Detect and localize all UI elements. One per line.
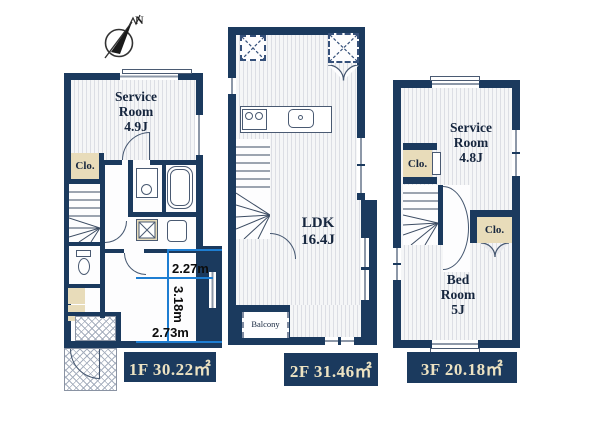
floor3-closet-right: Clo. bbox=[477, 217, 512, 243]
floor2-window-left bbox=[228, 78, 236, 94]
floor2-area-label: 2F 31.46㎡ bbox=[284, 353, 378, 386]
floor2-window-right bbox=[357, 166, 365, 193]
floor3-bed-room-label: Bed Room 5J bbox=[418, 272, 498, 317]
floor2-window-right bbox=[361, 270, 369, 300]
floor1-top-sill bbox=[122, 69, 192, 74]
compass-icon: N bbox=[96, 10, 146, 66]
washing-machine-x-icon bbox=[136, 219, 158, 241]
faucet-icon bbox=[298, 115, 303, 120]
floor2-ldk-bottom-right bbox=[290, 305, 361, 337]
floor2-plan: LDK 16.4J bbox=[228, 27, 377, 345]
floor2-window-right bbox=[361, 238, 369, 267]
dimension-width-top: 2.27m bbox=[172, 261, 209, 276]
floor3-window-bottom bbox=[432, 340, 478, 348]
floor1-cabinet-upper bbox=[68, 288, 85, 304]
stove-burner-icon bbox=[255, 112, 263, 120]
floor3-wall bbox=[470, 217, 477, 243]
floor1-service-room-label: Service Room 4.9J bbox=[96, 89, 176, 134]
floor3-window-left bbox=[393, 248, 401, 263]
floor3-area-label: 3F 20.18㎡ bbox=[407, 352, 517, 383]
floor3-closet-left: Clo. bbox=[403, 150, 432, 177]
floor3-wall bbox=[470, 210, 512, 217]
floor3-wall bbox=[403, 143, 437, 150]
floor3-top-sill bbox=[430, 76, 480, 81]
floor3-service-room-label: Service Room 4.8J bbox=[431, 120, 511, 165]
vanity-basin-icon bbox=[141, 184, 152, 195]
floor-plan-canvas: N Service Room 4.9J Clo. bbox=[0, 0, 600, 433]
floor1-wall bbox=[105, 249, 124, 253]
floor2-closet-doors-icon bbox=[328, 65, 359, 82]
dimension-line-bottom bbox=[136, 341, 222, 343]
floor1-wall bbox=[128, 160, 133, 217]
utility-sink-icon bbox=[167, 220, 187, 242]
floor2-window-bottom bbox=[325, 337, 338, 345]
bathtub-inner-icon bbox=[170, 169, 190, 206]
dimension-width-bottom: 2.73m bbox=[152, 325, 189, 340]
floor3-closet-left-label: Clo. bbox=[408, 158, 427, 170]
floor3-window-left bbox=[393, 265, 401, 280]
dimension-height: 3.18m bbox=[171, 286, 186, 323]
floor1-wall bbox=[128, 212, 196, 217]
floor2-balcony-label: Balcony bbox=[242, 320, 289, 330]
floor3-stairs-icon bbox=[403, 185, 438, 245]
floor3-wall bbox=[403, 177, 437, 184]
floor1-window-top bbox=[120, 73, 178, 80]
floor2-hatch-x-right-icon bbox=[328, 33, 359, 63]
floor3-window-right bbox=[512, 154, 520, 176]
floor2-hatch-x-left-icon bbox=[240, 35, 266, 61]
toilet-bowl-icon bbox=[78, 258, 90, 275]
floor3-closet-door bbox=[432, 152, 441, 175]
floor1-window-right bbox=[195, 115, 203, 155]
floor1-wall bbox=[150, 160, 196, 165]
compass-north-label: N bbox=[135, 13, 144, 27]
dimension-line-mid bbox=[136, 277, 213, 279]
floor1-closet-label: Clo. bbox=[75, 160, 94, 172]
floor3-window-top bbox=[432, 80, 479, 88]
floor1-entrance-hatch bbox=[75, 316, 116, 341]
floor2-window-bottom bbox=[341, 337, 354, 345]
floor3-plan: Service Room 4.8J Clo. Clo. bbox=[393, 80, 520, 348]
floor3-area-text: 3F 20.18㎡ bbox=[421, 355, 503, 380]
dimension-line-top bbox=[168, 249, 222, 251]
toilet-tank-icon bbox=[76, 250, 91, 257]
floor2-window-right bbox=[357, 138, 365, 164]
floor3-window-right bbox=[512, 130, 520, 152]
floor3-closet-doors-icon bbox=[481, 243, 509, 259]
floor1-wall bbox=[162, 165, 166, 212]
floor2-stairs-icon bbox=[236, 139, 270, 239]
floor1-area-text: 1F 30.22㎡ bbox=[129, 355, 211, 380]
stove-burner-icon bbox=[245, 112, 253, 120]
floor3-closet-right-label: Clo. bbox=[485, 224, 504, 236]
floor1-stairs-icon bbox=[69, 184, 100, 242]
floor1-area-label: 1F 30.22㎡ bbox=[124, 352, 216, 382]
floor1-closet: Clo. bbox=[71, 153, 99, 179]
floor2-area-text: 2F 31.46㎡ bbox=[290, 357, 372, 382]
floor2-outside-patch bbox=[365, 27, 377, 200]
floor1-wall bbox=[116, 312, 121, 341]
